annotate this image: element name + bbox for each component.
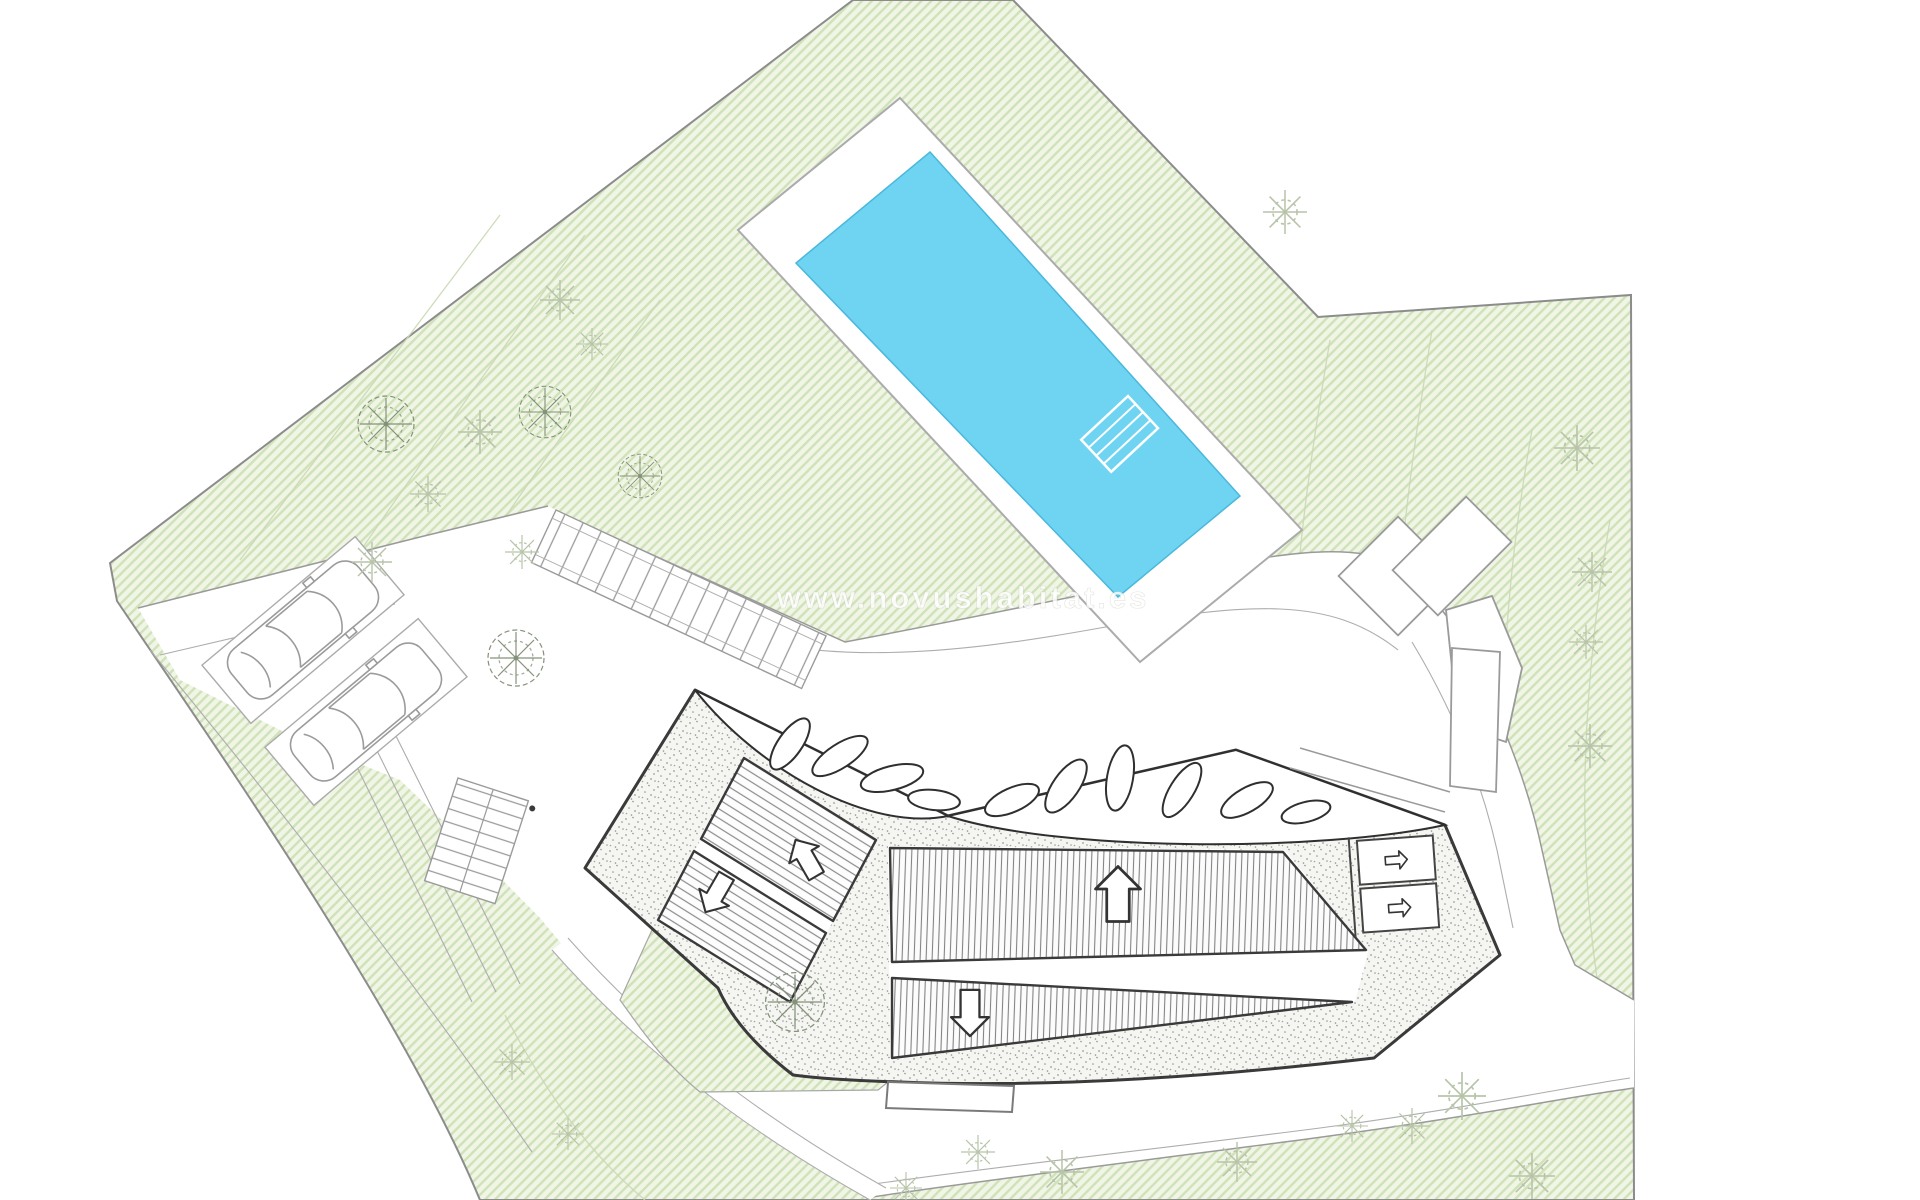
shrub-icon xyxy=(352,542,392,582)
watermark: www.novushabitat.es xyxy=(776,580,1150,615)
site-plan-drawing: www.novushabitat.es xyxy=(0,0,1920,1200)
shrub-icon xyxy=(1509,1153,1555,1199)
site-plan-page: www.novushabitat.es xyxy=(0,0,1920,1200)
shrub-icon xyxy=(1217,1142,1257,1182)
porch-rectangle xyxy=(886,1082,1014,1112)
shrub-icon xyxy=(1572,552,1612,592)
shrub-icon xyxy=(1554,425,1600,471)
shrub-icon xyxy=(494,1044,530,1080)
shrub-icon xyxy=(540,280,580,320)
shrub-icon xyxy=(458,410,502,454)
shrub-icon xyxy=(1263,190,1307,234)
shrub-icon xyxy=(552,1118,584,1150)
shrub-icon xyxy=(1336,1110,1368,1142)
shrub-icon xyxy=(1394,1108,1430,1144)
